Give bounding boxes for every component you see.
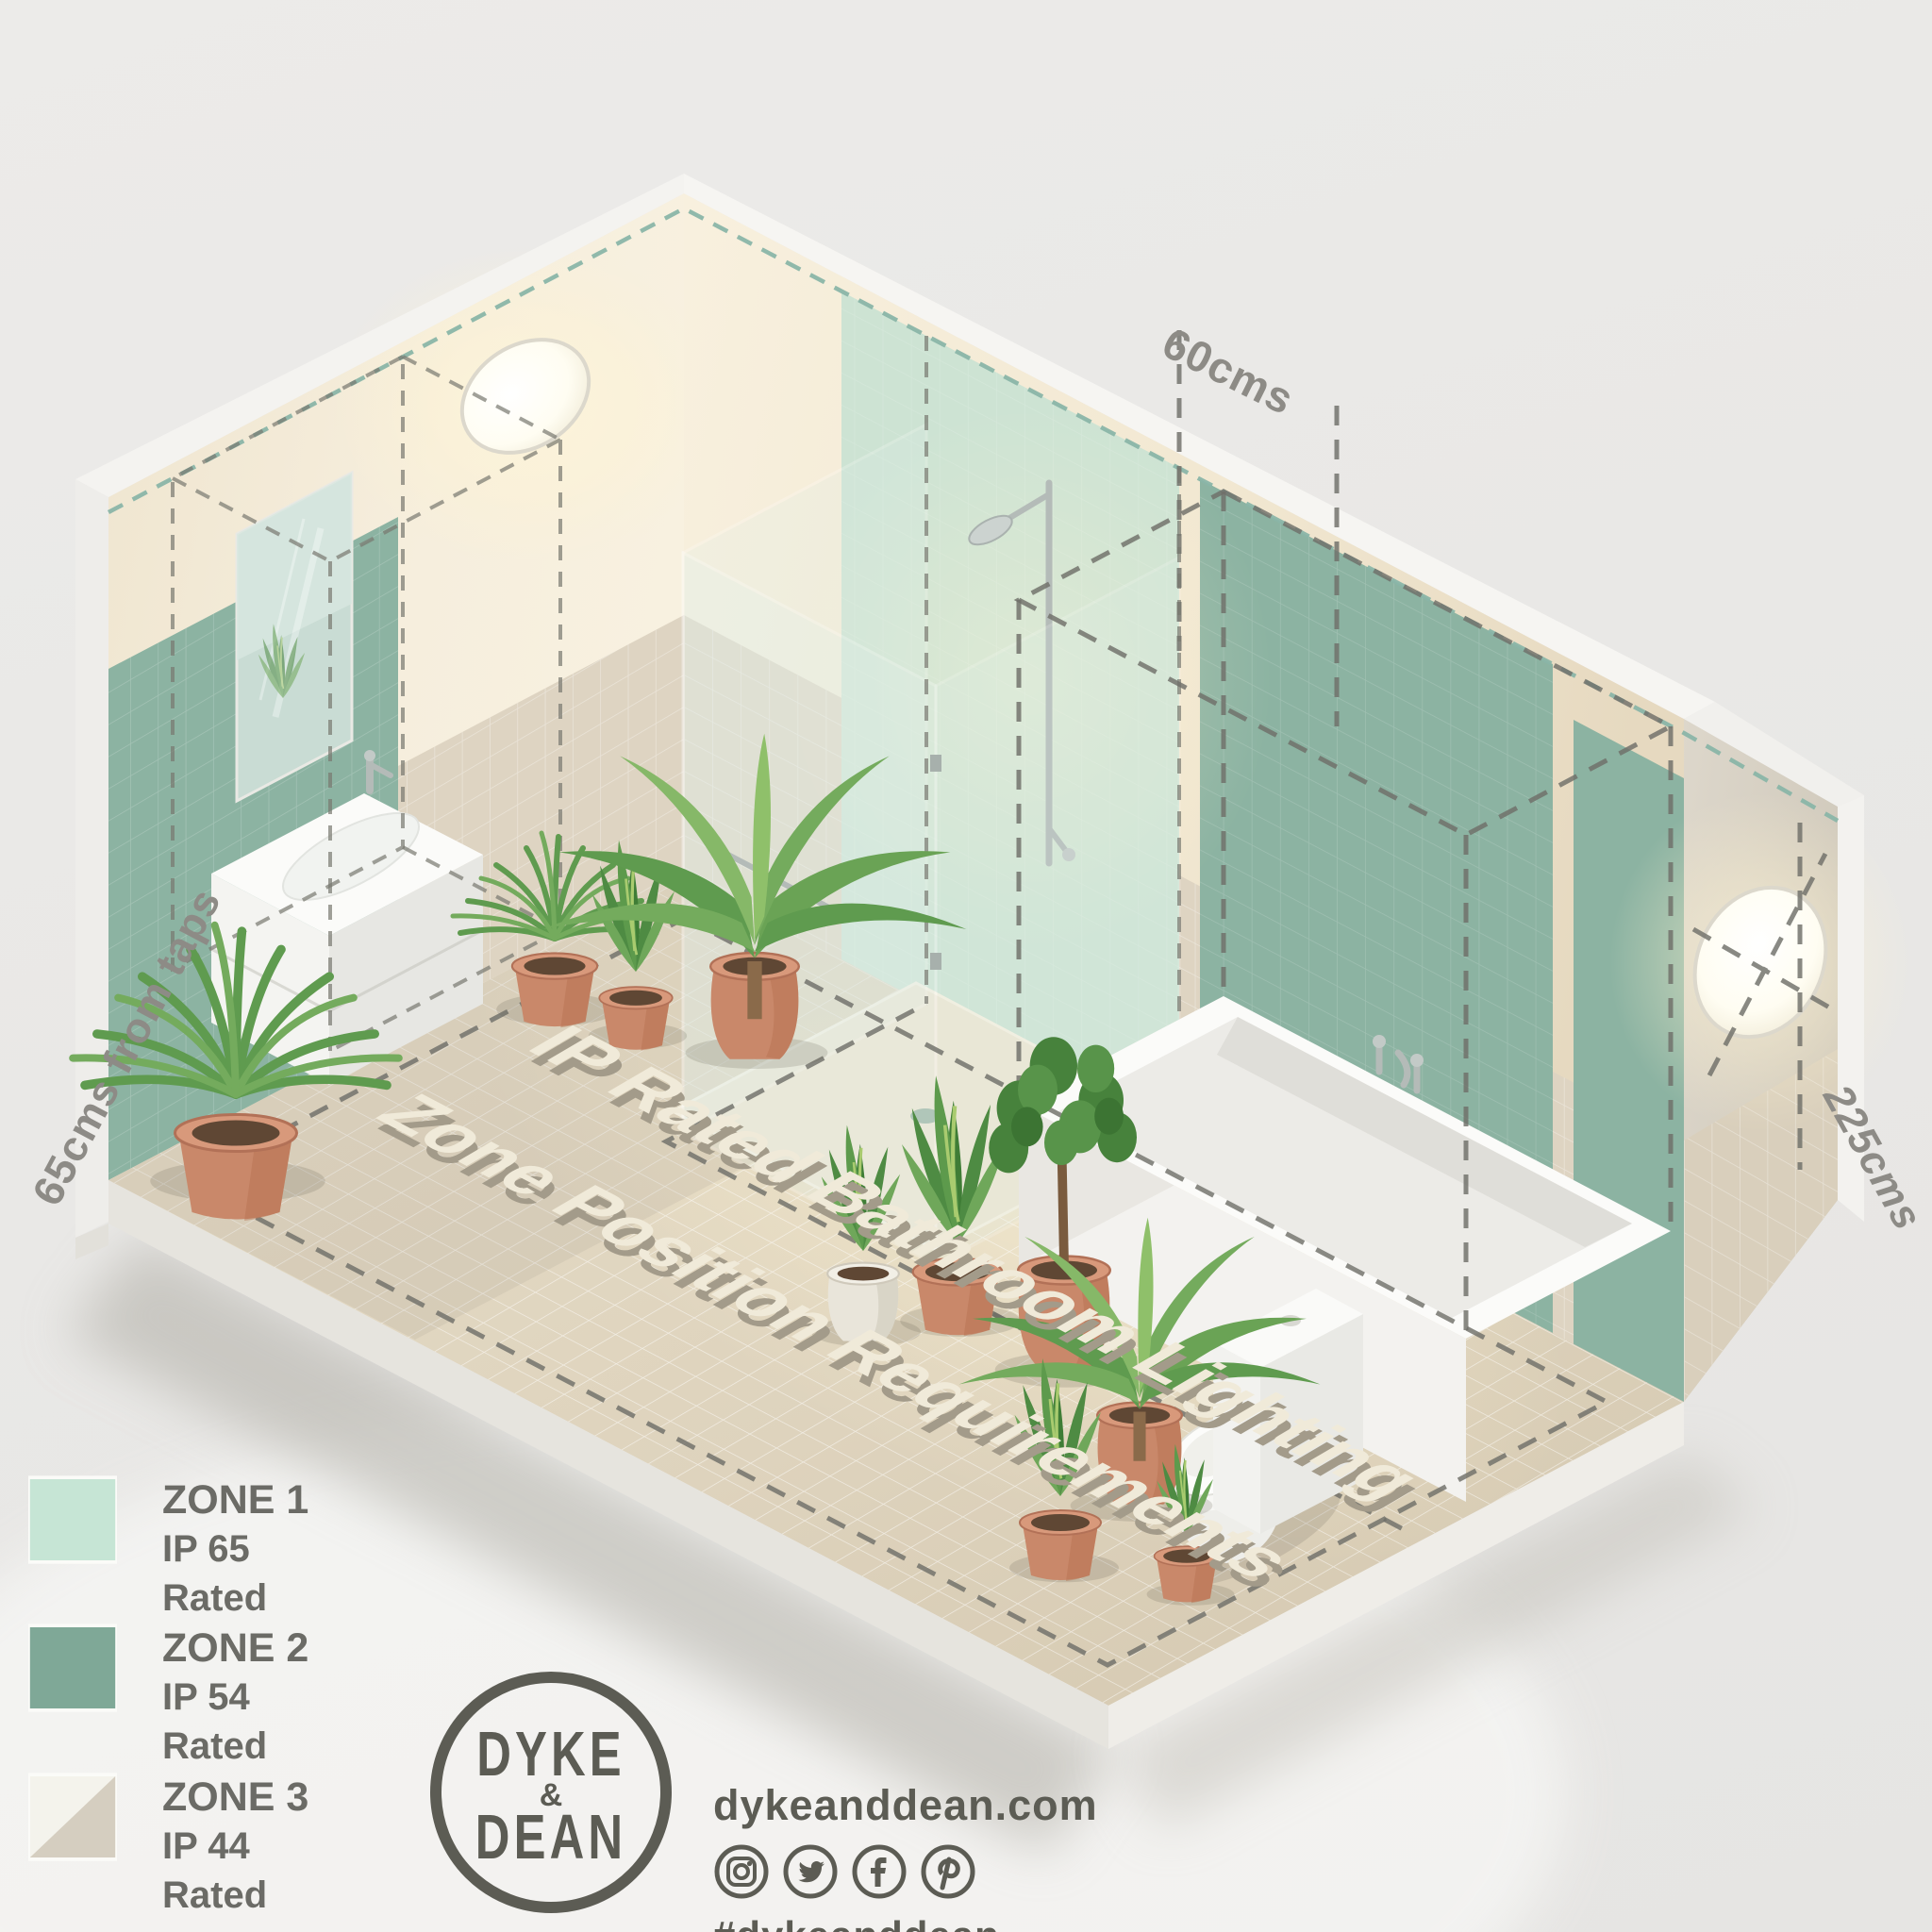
zone1-rating: IP 65 Rated	[162, 1524, 308, 1623]
legend-row-zone3: ZONE 3 IP 44 Rated	[28, 1758, 308, 1920]
zone3-rating: IP 44 Rated	[162, 1822, 308, 1920]
zone3-name: ZONE 3	[162, 1774, 308, 1822]
bathroom-lighting-infographic: IP Rated Bathroom Lighting Zone Position…	[0, 0, 1932, 1932]
zone2-rating: IP 54 Rated	[162, 1673, 308, 1771]
twitter-icon[interactable]	[782, 1843, 839, 1900]
pinterest-icon[interactable]	[920, 1843, 976, 1900]
glass-hinge	[930, 953, 941, 970]
logo-word-dean: DEAN	[475, 1801, 626, 1872]
zone1-name: ZONE 1	[162, 1476, 308, 1524]
zone2-swatch	[28, 1609, 117, 1726]
facebook-icon[interactable]	[851, 1843, 908, 1900]
zone2-name: ZONE 2	[162, 1624, 308, 1673]
legend-row-zone1: ZONE 1 IP 65 Rated	[28, 1461, 308, 1623]
hashtag-text[interactable]: #dykeanddean	[713, 1913, 1098, 1932]
footer-branding: DYKE & DEAN dykeanddean.com	[421, 1662, 1098, 1932]
zone3-swatch	[28, 1758, 117, 1875]
dyke-and-dean-logo[interactable]: DYKE & DEAN	[421, 1662, 681, 1923]
website-link[interactable]: dykeanddean.com	[713, 1781, 1098, 1830]
social-icons-row	[713, 1843, 1098, 1900]
instagram-icon[interactable]	[713, 1843, 770, 1900]
glass-hinge	[930, 755, 941, 772]
legend-row-zone2: ZONE 2 IP 54 Rated	[28, 1609, 308, 1771]
zone1-swatch	[28, 1461, 117, 1578]
